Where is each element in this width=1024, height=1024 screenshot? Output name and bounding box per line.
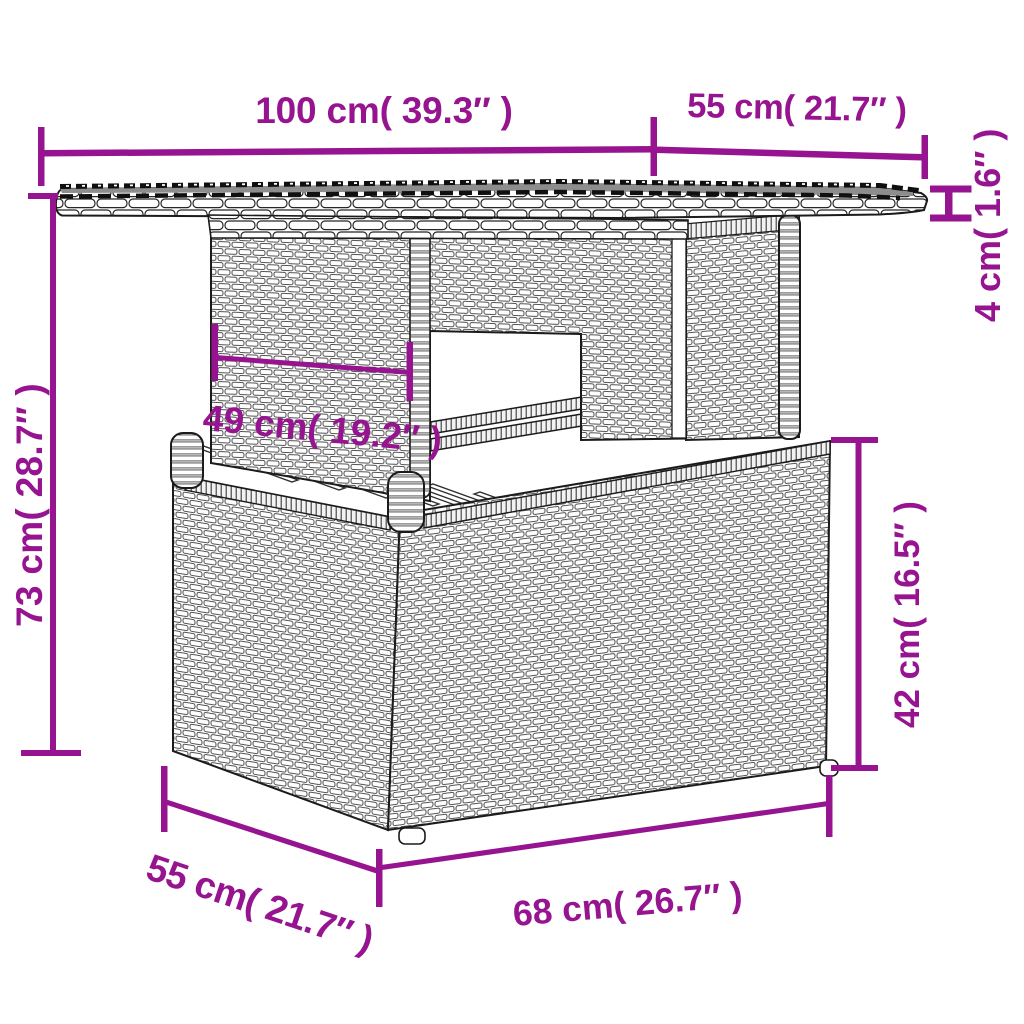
svg-text:4 cm( 1.6″ ): 4 cm( 1.6″ ) <box>967 129 1008 322</box>
svg-text:73 cm( 28.7″ ): 73 cm( 28.7″ ) <box>9 383 50 627</box>
svg-text:42 cm( 16.5″ ): 42 cm( 16.5″ ) <box>888 501 927 728</box>
svg-text:100 cm( 39.3″ ): 100 cm( 39.3″ ) <box>255 90 512 131</box>
svg-text:55 cm( 21.7″ ): 55 cm( 21.7″ ) <box>687 87 907 130</box>
